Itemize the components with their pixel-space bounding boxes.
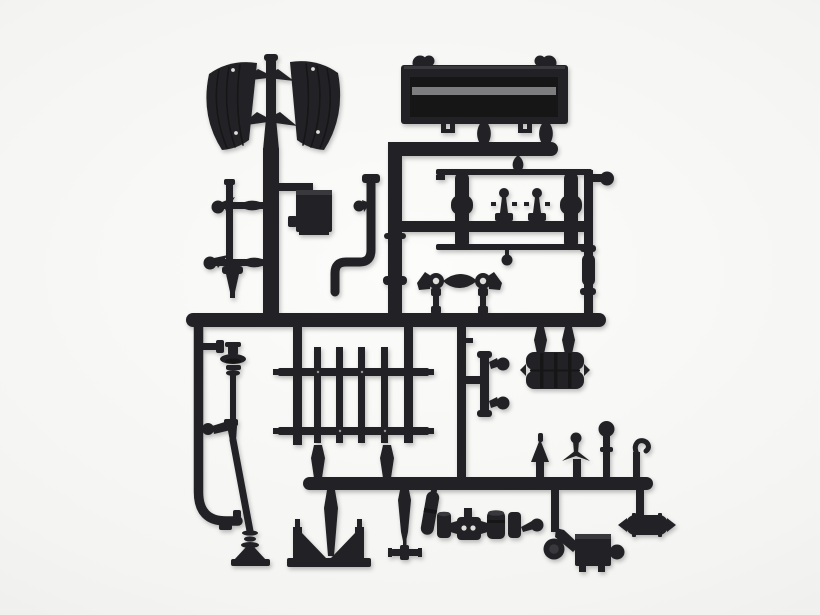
twin-tank [520, 327, 590, 389]
sprue-illustration [0, 0, 820, 615]
grille-right-runner [457, 327, 473, 479]
battery-box [271, 183, 332, 235]
support-bracket [287, 490, 371, 567]
frame-rack [394, 169, 592, 266]
air-tank [618, 490, 676, 537]
grille-panel [273, 325, 434, 445]
knob-bracket [464, 351, 510, 417]
left-parts-cluster [204, 179, 267, 298]
hook-upright [633, 441, 648, 479]
valve-upright [562, 433, 590, 480]
drum-cylinder [487, 510, 505, 539]
spindle-stub [311, 445, 325, 478]
lollipop-upright [599, 421, 615, 478]
exhaust-pipe [335, 174, 380, 292]
knuckle-pin [524, 188, 550, 221]
cargo-box [401, 56, 568, 151]
wheel-and-toolbox [544, 490, 625, 572]
product-photo [0, 0, 820, 615]
spindle-stub [380, 445, 394, 478]
jack-stand [231, 440, 270, 566]
cross-foot-rod [388, 490, 422, 560]
axle-beam [417, 272, 502, 314]
cylinder-small [508, 512, 521, 538]
cone-upright [531, 433, 549, 479]
bottom-runner [303, 477, 653, 490]
steering-column [202, 340, 246, 441]
ball-knob [521, 519, 544, 533]
left-mudguard [206, 62, 257, 150]
center-vertical-runner [383, 142, 407, 327]
knuckle-pin [491, 188, 517, 221]
right-mudguard [290, 61, 340, 150]
